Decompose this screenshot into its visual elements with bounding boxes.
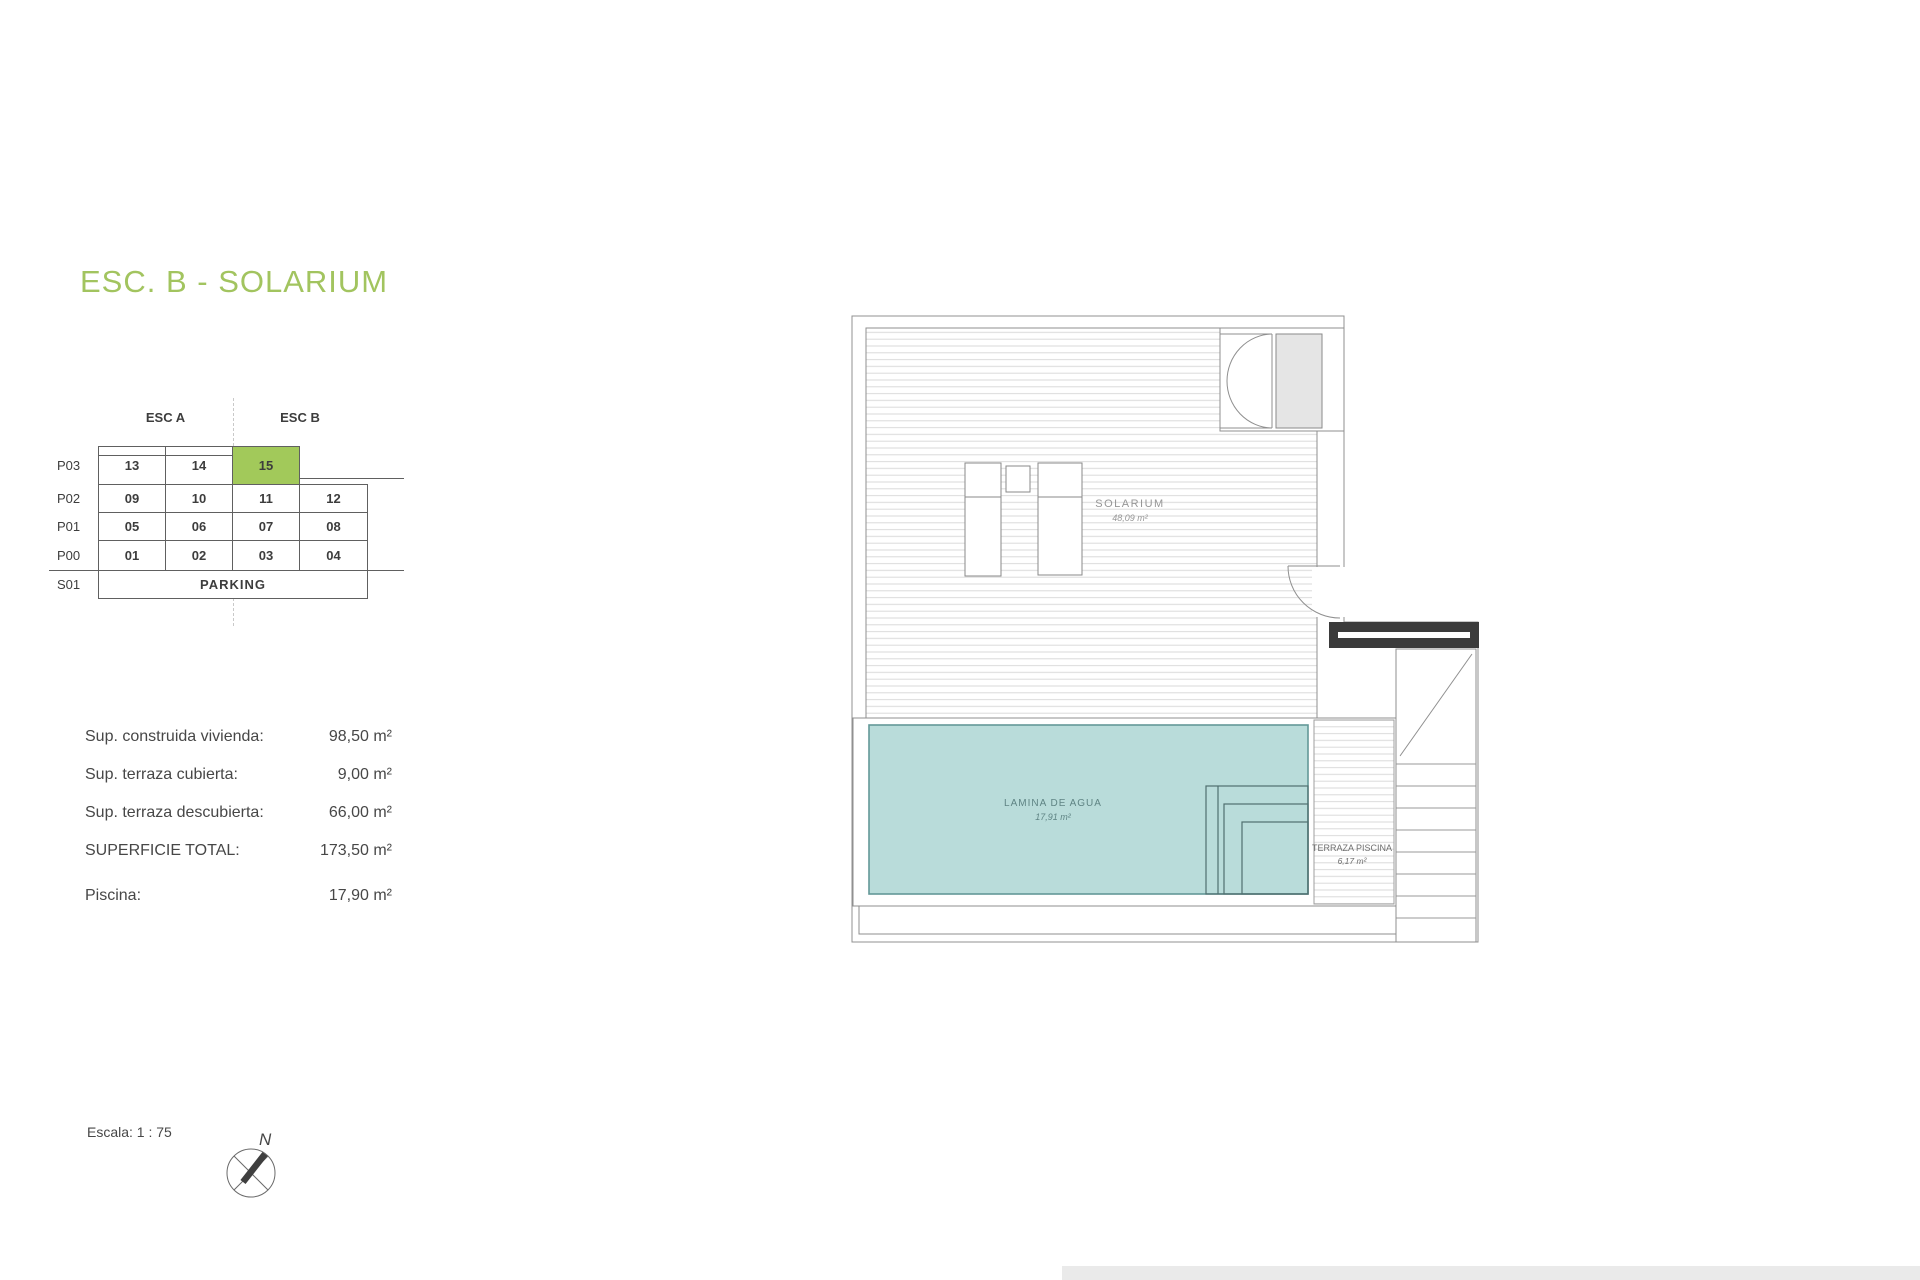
scale-label: Escala: 1 : 75	[87, 1124, 172, 1140]
grid-double-top-line	[98, 455, 233, 456]
unit-cell-07: 07	[232, 512, 300, 541]
unit-cell-08: 08	[299, 512, 368, 541]
measurement-label: Sup. terraza descubierta:	[85, 804, 264, 821]
measurement-value: 17,90 m²	[329, 887, 392, 905]
door-opening	[1312, 567, 1346, 617]
dark-beam-slit	[1338, 632, 1470, 638]
parking-cell: PARKING	[98, 570, 368, 599]
room-area-lamina: 17,91 m²	[1035, 812, 1072, 822]
grid-header-esc-a: ESC A	[98, 410, 233, 426]
unit-cell-03: 03	[232, 540, 300, 571]
unit-cell-05: 05	[98, 512, 166, 541]
unit-cell-12: 12	[299, 484, 368, 513]
room-label-terraza: TERRAZA PISCINA	[1312, 843, 1392, 853]
grid-extension-line-bottom	[49, 570, 404, 571]
level-label-p00: P00	[57, 548, 95, 563]
level-label-p02: P02	[57, 491, 95, 506]
room-label-lamina: LAMINA DE AGUA	[1004, 798, 1102, 809]
unit-cell-14: 14	[165, 446, 233, 485]
grid-header-esc-b: ESC B	[232, 410, 368, 426]
unit-cell-10: 10	[165, 484, 233, 513]
room-area-terraza: 6,17 m²	[1338, 856, 1368, 866]
sun-lounger-left	[965, 463, 1001, 576]
measurement-label: Piscina:	[85, 887, 141, 904]
measurement-value: 173,50 m²	[320, 842, 392, 860]
measurement-value: 9,00 m²	[338, 766, 392, 784]
measurement-label: Sup. construida vivienda:	[85, 728, 264, 745]
room-label-solarium: SOLARIUM	[1095, 498, 1164, 510]
unit-cell-01: 01	[98, 540, 166, 571]
measurement-row: Sup. construida vivienda: 98,50 m²	[85, 728, 392, 748]
level-label-p01: P01	[57, 519, 95, 534]
unit-cell-09: 09	[98, 484, 166, 513]
side-table	[1006, 466, 1030, 492]
shaft-box	[1276, 334, 1322, 428]
compass-north-label: N	[259, 1130, 272, 1149]
grid-extension-line-top	[300, 478, 404, 479]
terraza-piscina-deck	[1314, 720, 1394, 904]
measurement-label: Sup. terraza cubierta:	[85, 766, 238, 783]
measurement-row: Sup. terraza descubierta: 66,00 m²	[85, 804, 392, 824]
staircase	[1396, 649, 1476, 942]
page-edge-strip	[1062, 1266, 1920, 1280]
floor-plan: SOLARIUM 48,09 m² LAMINA DE AGUA 17,91 m…	[840, 300, 1500, 960]
page-title: ESC. B - SOLARIUM	[80, 264, 388, 300]
bottom-terrace-band	[859, 906, 1396, 934]
measurement-row: Piscina: 17,90 m²	[85, 887, 392, 907]
unit-cell-15-highlighted: 15	[232, 446, 300, 485]
unit-cell-06: 06	[165, 512, 233, 541]
unit-cell-13: 13	[98, 446, 166, 485]
measurement-value: 66,00 m²	[329, 804, 392, 822]
unit-cell-04: 04	[299, 540, 368, 571]
measurement-label: SUPERFICIE TOTAL:	[85, 842, 240, 859]
compass-icon: N	[215, 1125, 290, 1205]
sun-lounger-right	[1038, 463, 1082, 575]
measurement-row: Sup. terraza cubierta: 9,00 m²	[85, 766, 392, 786]
level-label-p03: P03	[57, 458, 95, 473]
measurement-row: SUPERFICIE TOTAL: 173,50 m²	[85, 842, 392, 862]
unit-cell-02: 02	[165, 540, 233, 571]
measurement-value: 98,50 m²	[329, 728, 392, 746]
unit-cell-11: 11	[232, 484, 300, 513]
level-label-s01: S01	[57, 577, 95, 592]
room-area-solarium: 48,09 m²	[1112, 513, 1149, 523]
